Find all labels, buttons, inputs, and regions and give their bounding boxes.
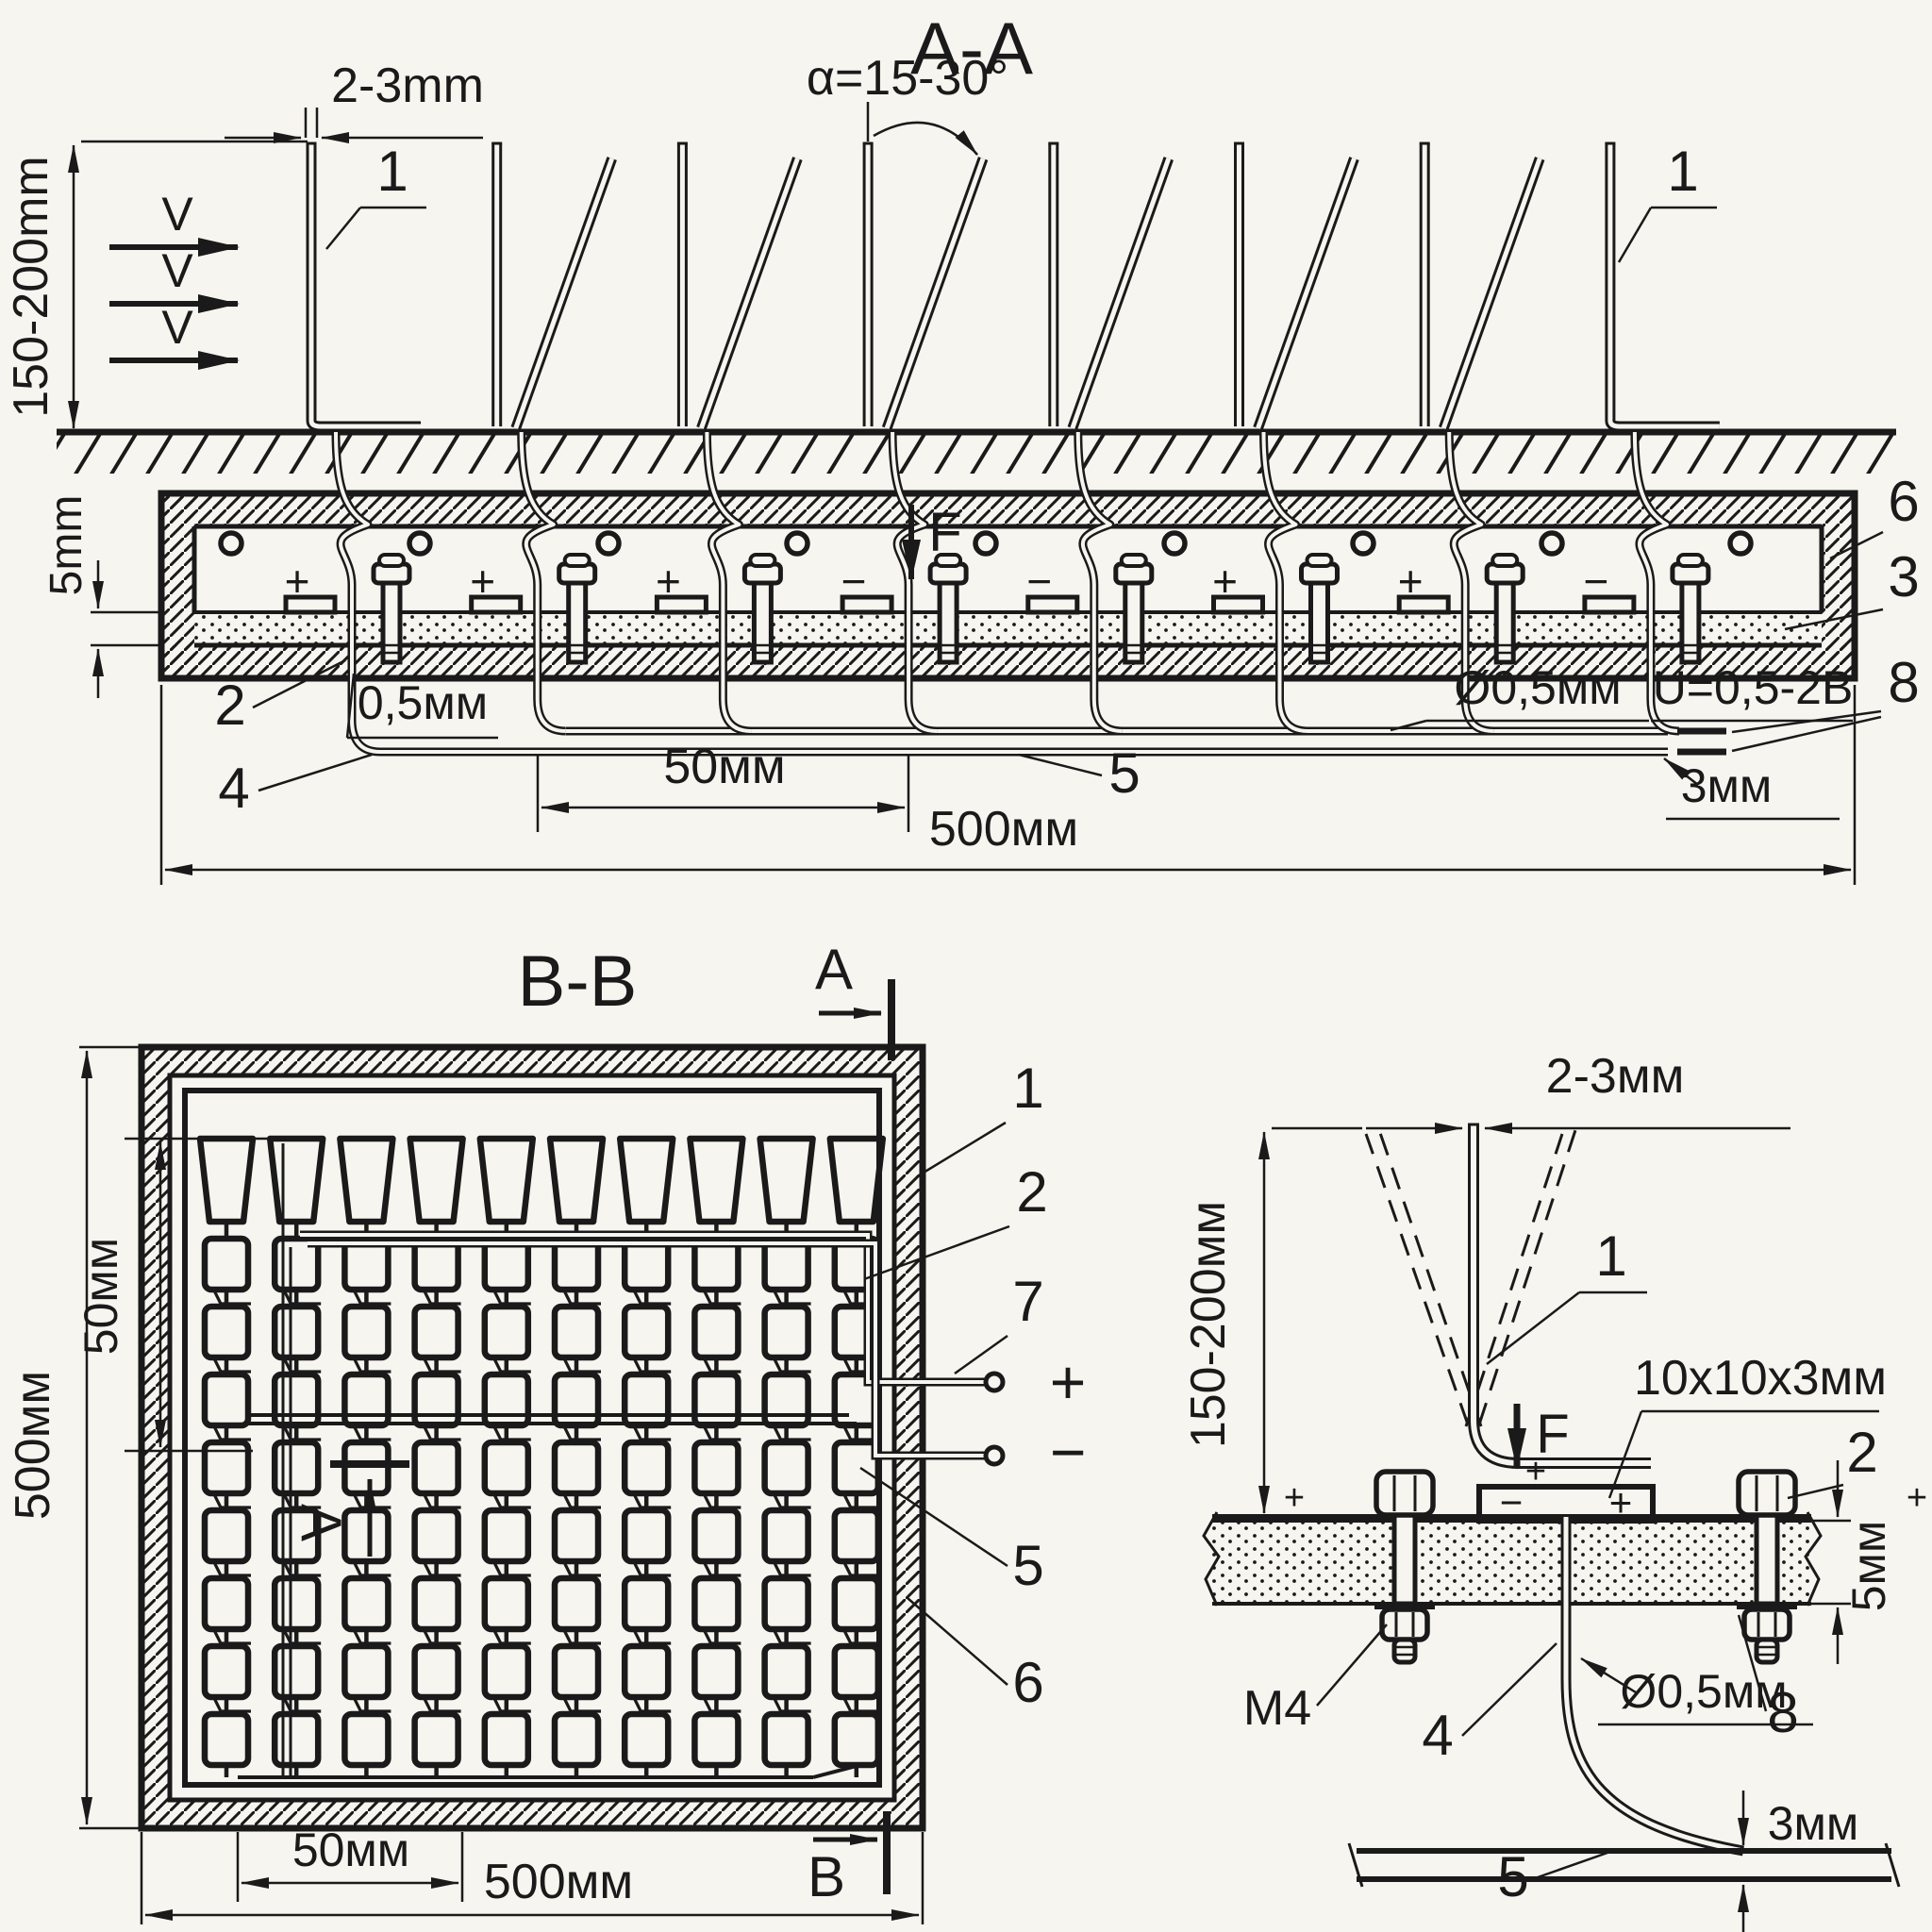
wall-left xyxy=(161,493,194,678)
callout-wire-dia: Ø0,5мм xyxy=(1454,661,1621,714)
dim-text: 150-200mm xyxy=(4,156,58,417)
bolt-shaft xyxy=(1125,581,1142,662)
board-dots xyxy=(1212,1521,1811,1604)
polarity-sign: + xyxy=(1212,557,1238,606)
part-label-4: 4 xyxy=(1422,1704,1453,1767)
bolt-shaft xyxy=(1496,581,1513,662)
mark-a-top-label: A xyxy=(815,938,853,1001)
terminal-minus-tip xyxy=(986,1447,1003,1464)
dim-text: 500мм xyxy=(929,802,1078,857)
dim-text-board: 5мм xyxy=(1842,1521,1895,1612)
detail-bolt-tip xyxy=(1757,1640,1777,1662)
bolt-cap xyxy=(565,555,590,566)
part-label-5: 5 xyxy=(1012,1534,1043,1597)
detail-bolt-nut xyxy=(1382,1609,1427,1640)
polarity-sign: − xyxy=(841,557,867,606)
polarity-sign: + xyxy=(470,557,495,606)
bolt-shaft xyxy=(569,581,586,662)
terminal-plus-tip xyxy=(986,1374,1003,1391)
bolt-cap xyxy=(1678,555,1703,566)
technical-drawing-page: A-A +++−−++− V V xyxy=(0,0,1932,1932)
force-label: F xyxy=(1536,1404,1569,1465)
dim-text: 5mm xyxy=(42,495,92,596)
part-label-5: 5 xyxy=(1497,1845,1528,1908)
mark-a-left-label: A xyxy=(290,1504,353,1541)
dim-text: 50мм xyxy=(663,740,785,794)
detail-bolt-shaft xyxy=(1394,1515,1415,1604)
callout-thread: M4 xyxy=(1243,1681,1311,1736)
wall-top xyxy=(161,493,1855,526)
callout-bus: 3мм xyxy=(1681,759,1773,812)
terminal-plus-sign: + xyxy=(1050,1347,1087,1417)
bolt-shaft xyxy=(383,581,400,662)
flow-label-3: V xyxy=(161,301,193,354)
frame-wall-right xyxy=(894,1075,923,1800)
textolite-board xyxy=(194,612,1822,645)
bolt-shaft xyxy=(754,581,771,662)
part-label-3: 3 xyxy=(1888,545,1919,608)
part-label-2: 2 xyxy=(1846,1421,1877,1484)
part-label-1: 1 xyxy=(1012,1057,1043,1120)
part-label-4: 4 xyxy=(218,757,249,820)
dim-text: 500мм xyxy=(6,1371,60,1520)
polarity-sign: + xyxy=(656,557,681,606)
bolt-cap xyxy=(1307,555,1332,566)
callout-wire: 0,5мм xyxy=(358,676,488,729)
flow-label-2: V xyxy=(161,244,193,297)
dim-text: 2-3mm xyxy=(331,58,484,113)
dim-text: 500мм xyxy=(484,1855,633,1909)
bolt-cap xyxy=(1492,555,1517,566)
part-label-2: 2 xyxy=(1016,1160,1047,1224)
force-label: F xyxy=(928,502,961,563)
detail-bolt-shaft xyxy=(1757,1515,1777,1604)
terminal-minus-sign: − xyxy=(1050,1417,1087,1487)
detail-bolt-nut xyxy=(1744,1609,1790,1640)
part-label-1-right: 1 xyxy=(1667,140,1698,203)
drawing-canvas: A-A +++−−++− V V xyxy=(0,0,1932,1932)
part-label-7: 7 xyxy=(1012,1270,1043,1333)
sign-sheet-left: + xyxy=(1284,1478,1305,1518)
mark-b-label: B xyxy=(808,1845,845,1908)
frame-wall-left xyxy=(142,1075,170,1800)
bolt-shaft xyxy=(1682,581,1699,662)
sign-sheet-right: + xyxy=(1907,1478,1927,1518)
callout-pad-size: 10x10x3мм xyxy=(1634,1351,1887,1406)
section-bb-title: B-B xyxy=(518,941,638,1022)
flow-label-1: V xyxy=(161,188,193,241)
frame-wall-bottom xyxy=(142,1800,923,1828)
detail-bolt-head xyxy=(1739,1472,1795,1515)
bolt-shaft xyxy=(940,581,957,662)
polarity-sign: + xyxy=(285,557,310,606)
frame-wall-top xyxy=(142,1047,923,1075)
polarity-sign: − xyxy=(1026,557,1052,606)
part-label-1: 1 xyxy=(1595,1224,1626,1288)
dim-text-bus: 3мм xyxy=(1768,1797,1859,1850)
dim-text-gap: 2-3мм xyxy=(1546,1049,1685,1104)
part-label-1-left: 1 xyxy=(376,140,408,203)
callout-wire-dia: Ø0,5мм xyxy=(1620,1665,1787,1718)
bolt-cap xyxy=(379,555,404,566)
part-label-6: 6 xyxy=(1012,1651,1043,1714)
bolt-shaft xyxy=(1311,581,1328,662)
part-label-2: 2 xyxy=(214,674,245,737)
bolt-cap xyxy=(750,555,774,566)
detail-bolt-tip xyxy=(1394,1640,1415,1662)
polarity-sign: − xyxy=(1583,557,1608,606)
callout-voltage: U=0,5-2В xyxy=(1653,661,1854,714)
part-label-5: 5 xyxy=(1108,741,1140,805)
bolt-cap xyxy=(1122,555,1146,566)
part-label-6: 6 xyxy=(1888,470,1919,533)
polarity-sign: + xyxy=(1398,557,1424,606)
detail-bolt-head xyxy=(1376,1472,1433,1515)
dim-text: 50мм xyxy=(292,1824,409,1876)
wall-right xyxy=(1822,493,1855,678)
dim-text: α=15-30° xyxy=(807,51,1008,106)
part-label-8: 8 xyxy=(1888,651,1919,714)
dim-text: 50мм xyxy=(75,1238,127,1355)
dim-text-height: 150-200мм xyxy=(1181,1201,1236,1448)
